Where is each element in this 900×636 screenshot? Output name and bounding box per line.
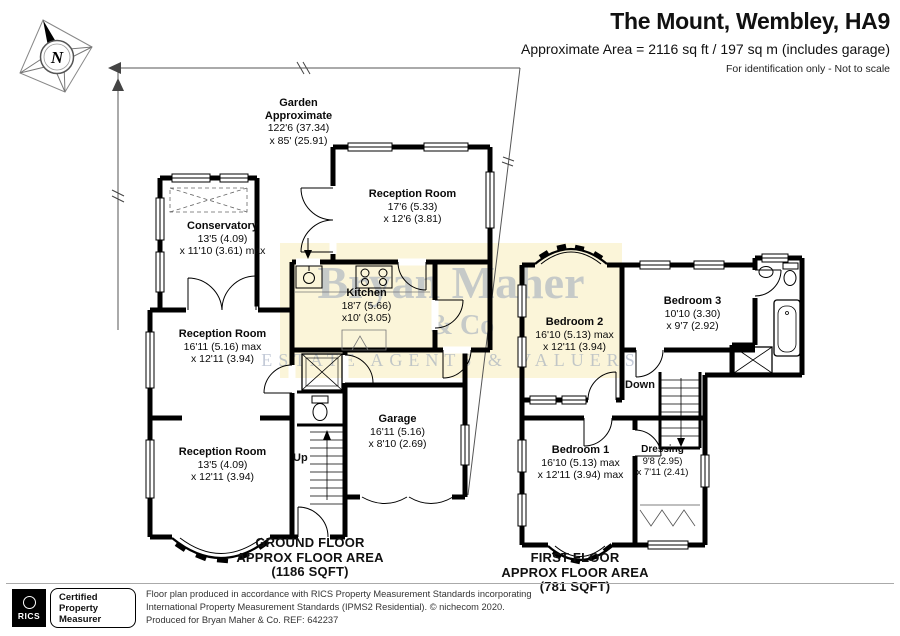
room-label-reception-mid: Reception Room 16'11 (5.16) max x 12'11 … bbox=[150, 328, 295, 366]
floorplan-drawing: Bryan Maher & Co ESTATE AGENTS & VALUERS… bbox=[0, 0, 900, 636]
footer-disclaimer-line3: Produced for Bryan Maher & Co. REF: 6422… bbox=[146, 614, 532, 627]
garden-label-line4: x 85' (25.91) bbox=[226, 135, 371, 148]
compass-n-label: N bbox=[50, 48, 64, 67]
certified-measurer-badge: Certified Property Measurer bbox=[50, 588, 136, 628]
up-label: Up bbox=[293, 452, 308, 464]
garden-label-line1: Garden bbox=[226, 97, 371, 110]
room-label-reception-bottom: Reception Room 13'5 (4.09) x 12'11 (3.94… bbox=[150, 446, 295, 484]
rics-lion-icon bbox=[23, 596, 36, 609]
room-label-garage: Garage 16'11 (5.16) x 8'10 (2.69) bbox=[325, 413, 470, 451]
footer-disclaimer-line1: Floor plan produced in accordance with R… bbox=[146, 588, 532, 601]
page-title: The Mount, Wembley, HA9 bbox=[521, 8, 890, 35]
rics-logo-text: RICS bbox=[18, 611, 40, 621]
room-label-bedroom3: Bedroom 3 10'10 (3.30) x 9'7 (2.92) bbox=[620, 295, 765, 333]
header: The Mount, Wembley, HA9 Approximate Area… bbox=[521, 8, 890, 75]
footer-disclaimer: Floor plan produced in accordance with R… bbox=[146, 588, 532, 627]
footer-divider bbox=[6, 583, 894, 584]
garden-label: Garden Approximate 122'6 (37.34) x 85' (… bbox=[226, 97, 371, 147]
ground-floor-area-label: GROUND FLOOR APPROX FLOOR AREA (1186 SQF… bbox=[205, 536, 415, 580]
roof-hatch bbox=[170, 188, 247, 212]
sink-icon-ff bbox=[759, 267, 773, 278]
compass-rose: N bbox=[20, 20, 92, 92]
bath-icon bbox=[774, 300, 800, 356]
rics-logo: RICS bbox=[12, 589, 46, 627]
garden-label-line3: 122'6 (37.34) bbox=[226, 122, 371, 135]
toilet-icon-ff bbox=[783, 263, 798, 286]
watermark-line2: & Co bbox=[430, 310, 495, 341]
garden-label-line2: Approximate bbox=[226, 110, 371, 123]
floorplan-page: Bryan Maher & Co ESTATE AGENTS & VALUERS… bbox=[0, 0, 900, 636]
stairs-down bbox=[660, 378, 700, 447]
wardrobe-icon bbox=[640, 505, 700, 526]
room-label-kitchen: Kitchen 18'7 (5.66) x10' (3.05) bbox=[294, 287, 439, 325]
room-label-conservatory: Conservatory 13'5 (4.09) x 11'10 (3.61) … bbox=[150, 220, 295, 258]
room-label-reception-top: Reception Room 17'6 (5.33) x 12'6 (3.81) bbox=[340, 188, 485, 226]
down-label: Down bbox=[625, 379, 655, 391]
page-note: For identification only - Not to scale bbox=[521, 63, 890, 75]
page-subtitle: Approximate Area = 2116 sq ft / 197 sq m… bbox=[521, 41, 890, 57]
room-label-dressing: Dressing 9'8 (2.95) x 7'11 (2.41) bbox=[605, 444, 720, 479]
footer-disclaimer-line2: International Property Measurement Stand… bbox=[146, 601, 532, 614]
